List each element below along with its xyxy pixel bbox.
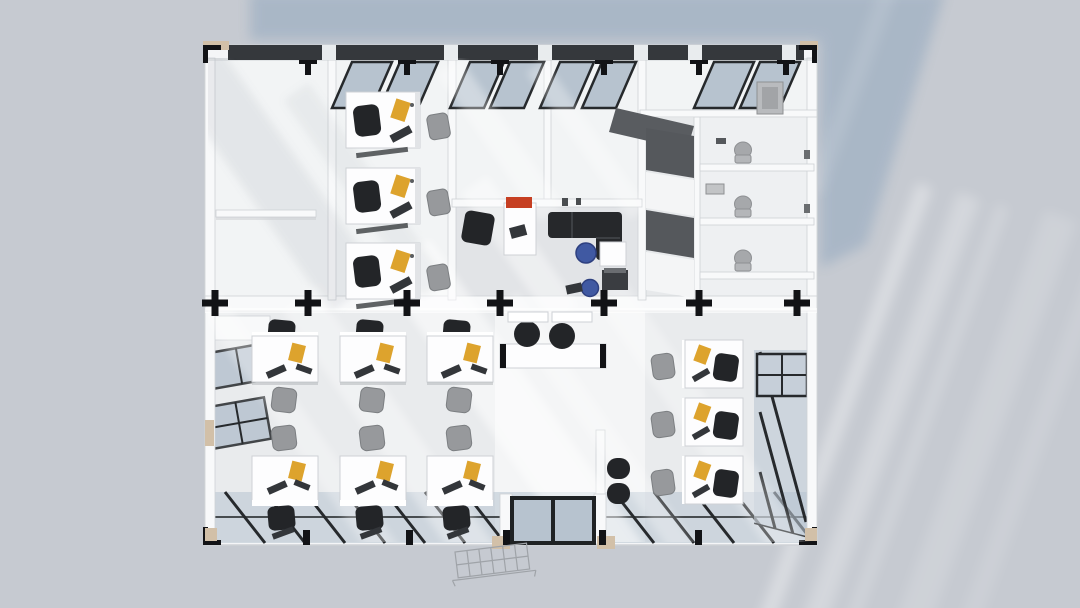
closet-door-dark: [646, 128, 694, 178]
render-canvas: [0, 0, 1080, 608]
faucet: [576, 198, 581, 205]
black-stool: [549, 323, 575, 349]
sink: [706, 184, 724, 194]
lounge-chair: [607, 458, 630, 479]
open-plan-right: [650, 340, 743, 504]
wall-outlet: [804, 204, 810, 213]
lounge-chair: [607, 483, 630, 504]
building: [170, 41, 818, 601]
door-leaf: [512, 498, 553, 543]
wall-cabinet: [508, 312, 548, 322]
toilet: [735, 196, 752, 217]
office-chair: [460, 210, 495, 247]
wc-shelf: [700, 218, 814, 225]
door-leaf: [553, 498, 594, 543]
closet-door-dark: [646, 210, 694, 258]
toilet: [735, 142, 752, 163]
closet-door-white: [646, 252, 694, 298]
open-plan-left: [252, 319, 493, 540]
black-stool: [514, 321, 540, 347]
room-utility: [757, 82, 783, 114]
wc-shelf: [700, 272, 814, 279]
side-table: [600, 242, 626, 266]
entrance: [492, 494, 615, 549]
room-team-office: [346, 92, 451, 309]
faucet: [562, 198, 568, 206]
blue-stool: [576, 243, 596, 263]
wall-shelf: [216, 210, 316, 217]
wc-shelf: [700, 164, 814, 171]
toilet: [735, 250, 752, 271]
high-table: [500, 344, 606, 368]
blue-stool: [582, 280, 599, 297]
wall-cabinet: [552, 312, 592, 322]
top-facade-band: [228, 45, 804, 60]
office-floorplan-render: [0, 0, 1080, 608]
wall-fitting: [716, 138, 726, 144]
wall-outlet: [804, 150, 810, 159]
room-private-office: [216, 210, 316, 220]
red-box: [506, 197, 532, 208]
